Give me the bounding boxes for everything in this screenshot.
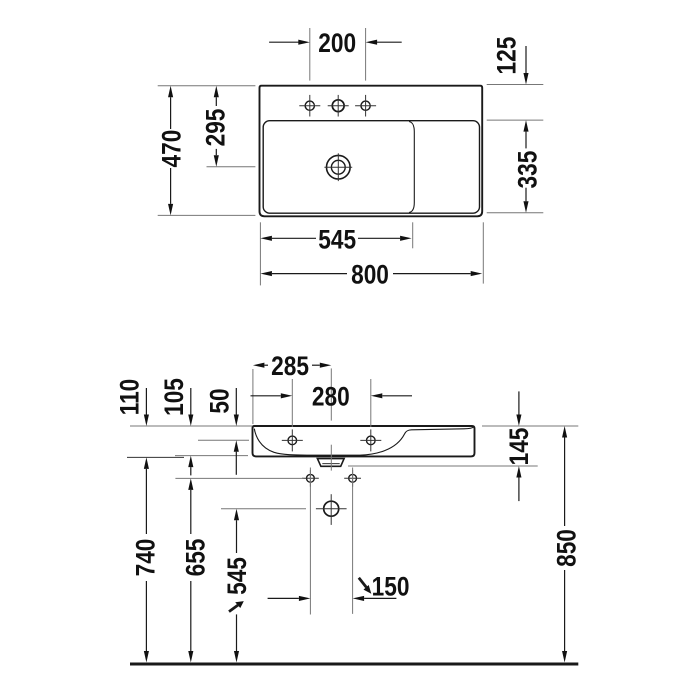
svg-text:50: 50 [205, 388, 235, 413]
svg-text:150: 150 [372, 572, 410, 602]
svg-text:800: 800 [351, 260, 389, 290]
svg-text:125: 125 [491, 37, 521, 75]
svg-text:285: 285 [271, 351, 309, 381]
svg-text:145: 145 [504, 427, 534, 465]
svg-text:740: 740 [130, 539, 160, 577]
svg-text:470: 470 [156, 130, 186, 168]
svg-text:850: 850 [552, 529, 582, 567]
svg-text:110: 110 [115, 379, 145, 416]
svg-text:545: 545 [222, 557, 252, 595]
svg-text:295: 295 [201, 108, 231, 146]
svg-text:335: 335 [513, 151, 543, 189]
svg-text:280: 280 [312, 382, 350, 412]
svg-text:200: 200 [318, 28, 356, 58]
svg-text:545: 545 [318, 224, 356, 254]
svg-text:655: 655 [181, 538, 211, 576]
svg-text:105: 105 [159, 378, 189, 416]
